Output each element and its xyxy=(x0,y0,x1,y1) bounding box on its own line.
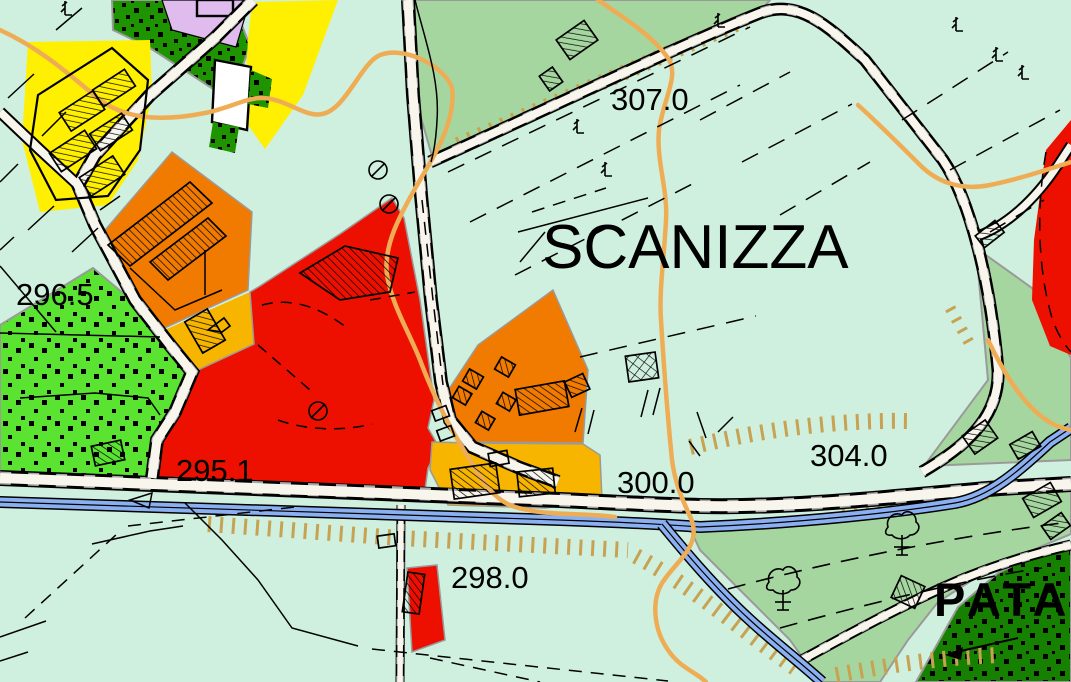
elevation-label-296-5: 296.5 xyxy=(16,277,94,312)
building-crosshatch xyxy=(625,352,658,382)
elevation-label-295-1: 295.1 xyxy=(176,453,254,488)
map-canvas[interactable]: SCANIZZA PATA 296.5 307.0 295.1 300.0 30… xyxy=(0,0,1071,682)
building xyxy=(517,468,555,497)
elevation-label-298-0: 298.0 xyxy=(451,560,529,595)
place-label-pata: PATA xyxy=(934,573,1071,626)
elevation-label-300-0: 300.0 xyxy=(617,465,695,500)
track-south xyxy=(400,505,401,682)
elevation-label-304-0: 304.0 xyxy=(810,438,888,473)
elevation-label-307-0: 307.0 xyxy=(611,82,689,117)
building xyxy=(450,463,500,499)
place-label-scanizza: SCANIZZA xyxy=(542,213,849,282)
parcel-white xyxy=(212,60,251,130)
map-viewport[interactable]: SCANIZZA PATA 296.5 307.0 295.1 300.0 30… xyxy=(0,0,1071,682)
